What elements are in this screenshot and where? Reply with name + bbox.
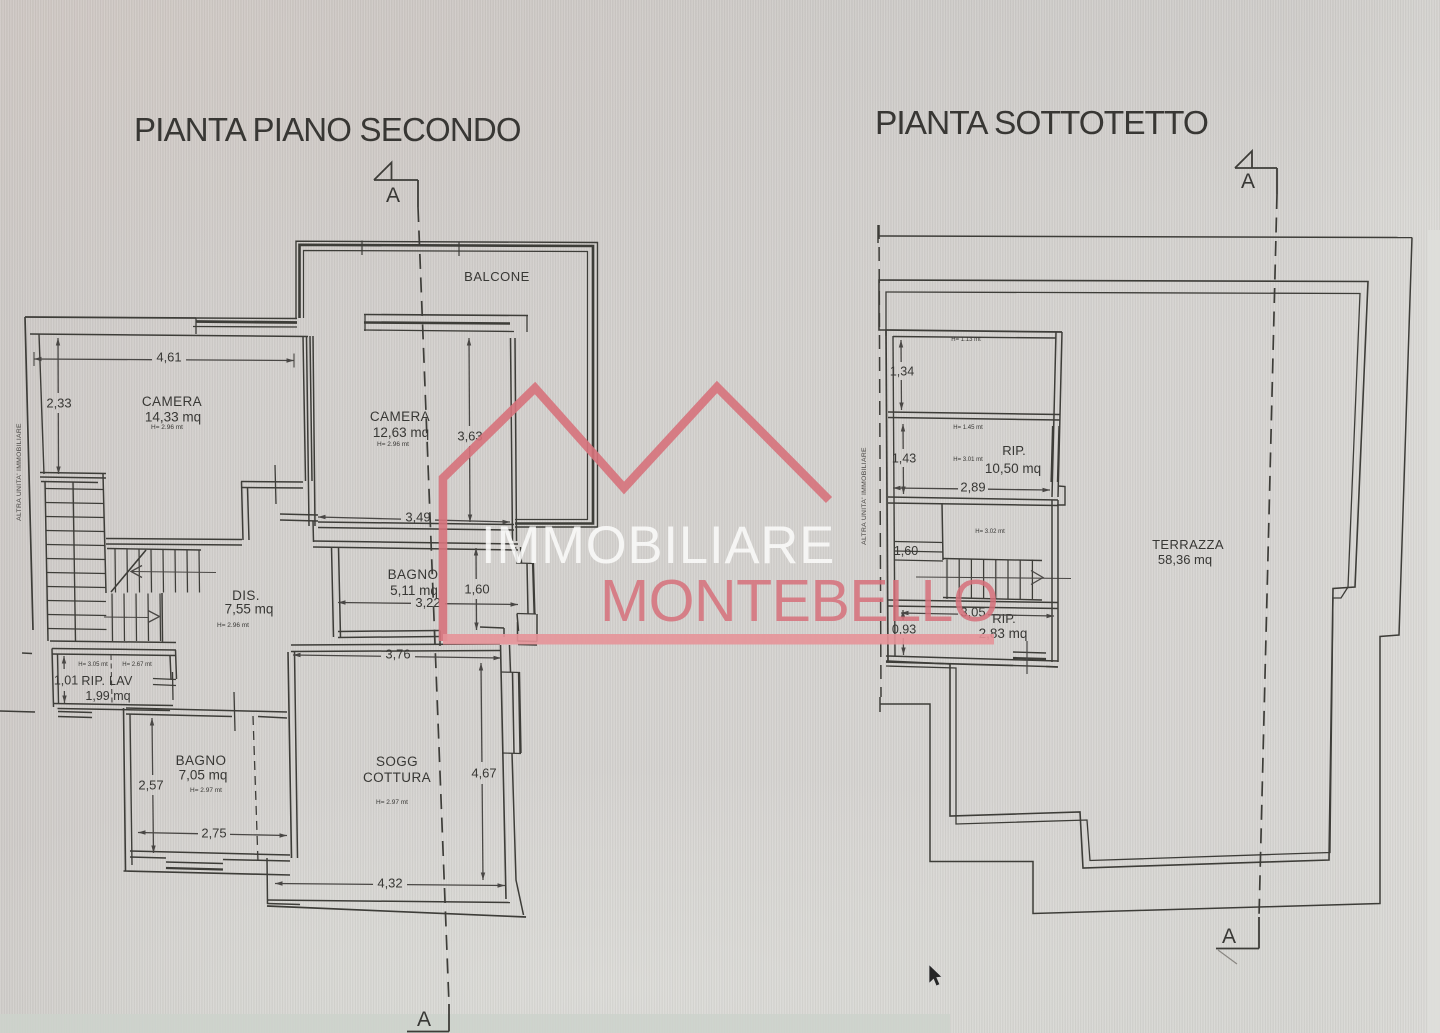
- svg-text:ALTRA UNITA' IMMOBILIARE: ALTRA UNITA' IMMOBILIARE: [16, 423, 23, 521]
- svg-text:A: A: [417, 1008, 431, 1031]
- svg-text:BALCONE: BALCONE: [464, 269, 530, 284]
- svg-text:H= 2.97 mt: H= 2.97 mt: [190, 787, 222, 794]
- svg-text:CAMERA: CAMERA: [370, 409, 430, 424]
- svg-text:TERRAZZA: TERRAZZA: [1152, 537, 1224, 552]
- svg-text:RIP. LAV: RIP. LAV: [81, 674, 133, 688]
- svg-text:MONTEBELLO: MONTEBELLO: [600, 568, 998, 634]
- svg-text:4,61: 4,61: [156, 350, 181, 365]
- svg-text:BAGNO: BAGNO: [388, 567, 439, 582]
- svg-text:1,60: 1,60: [894, 544, 918, 558]
- svg-text:SOGG: SOGG: [376, 754, 418, 769]
- svg-text:H= 1.13 mt: H= 1.13 mt: [951, 337, 981, 343]
- svg-text:14,33 mq: 14,33 mq: [145, 410, 201, 425]
- svg-text:12,63 mq: 12,63 mq: [373, 425, 429, 440]
- svg-text:58,36 mq: 58,36 mq: [1158, 552, 1212, 567]
- svg-text:1,99 mq: 1,99 mq: [85, 689, 130, 703]
- svg-text:PIANTA PIANO SECONDO: PIANTA PIANO SECONDO: [134, 111, 521, 148]
- svg-text:A: A: [1222, 925, 1236, 948]
- svg-text:2,57: 2,57: [138, 778, 163, 793]
- svg-text:2,33: 2,33: [46, 396, 71, 411]
- svg-text:BAGNO: BAGNO: [176, 753, 227, 768]
- svg-text:COTTURA: COTTURA: [363, 770, 431, 785]
- svg-text:H= 2.67 mt: H= 2.67 mt: [122, 662, 152, 668]
- svg-text:7,05 mq: 7,05 mq: [179, 768, 228, 783]
- svg-text:H= 2.96 mt: H= 2.96 mt: [217, 622, 249, 629]
- svg-text:H= 2.96 mt: H= 2.96 mt: [377, 441, 409, 448]
- svg-text:4,67: 4,67: [471, 766, 496, 781]
- svg-text:RIP.: RIP.: [1002, 443, 1026, 458]
- svg-text:2,75: 2,75: [201, 826, 226, 841]
- svg-text:H= 3.01 mt: H= 3.01 mt: [953, 457, 983, 463]
- svg-text:H= 3.02 mt: H= 3.02 mt: [975, 529, 1005, 535]
- svg-text:2,89: 2,89: [960, 480, 985, 495]
- svg-text:1,60: 1,60: [464, 582, 489, 597]
- svg-text:H= 2.96 mt: H= 2.96 mt: [151, 424, 183, 431]
- svg-text:H= 3.05 mt: H= 3.05 mt: [78, 662, 108, 668]
- svg-text:4,32: 4,32: [377, 876, 402, 891]
- svg-text:H= 1.45 mt: H= 1.45 mt: [953, 425, 983, 431]
- svg-text:1,01: 1,01: [54, 674, 78, 688]
- svg-text:7,55 mq: 7,55 mq: [225, 602, 274, 617]
- svg-text:A: A: [386, 184, 400, 207]
- svg-text:PIANTA SOTTOTETTO: PIANTA SOTTOTETTO: [875, 105, 1208, 142]
- svg-text:3,49: 3,49: [405, 510, 430, 525]
- svg-text:1,34: 1,34: [890, 365, 914, 379]
- svg-text:H= 2.97 mt: H= 2.97 mt: [376, 799, 408, 806]
- svg-text:A: A: [1241, 170, 1255, 193]
- svg-text:IMMOBILIARE: IMMOBILIARE: [481, 516, 835, 575]
- svg-text:3,76: 3,76: [385, 647, 410, 662]
- svg-text:CAMERA: CAMERA: [142, 394, 202, 409]
- svg-text:ALTRA UNITA' IMMOBILIARE: ALTRA UNITA' IMMOBILIARE: [861, 447, 868, 545]
- svg-text:10,50 mq: 10,50 mq: [985, 461, 1041, 476]
- svg-text:3,22: 3,22: [415, 595, 440, 610]
- svg-text:1,43: 1,43: [892, 452, 916, 466]
